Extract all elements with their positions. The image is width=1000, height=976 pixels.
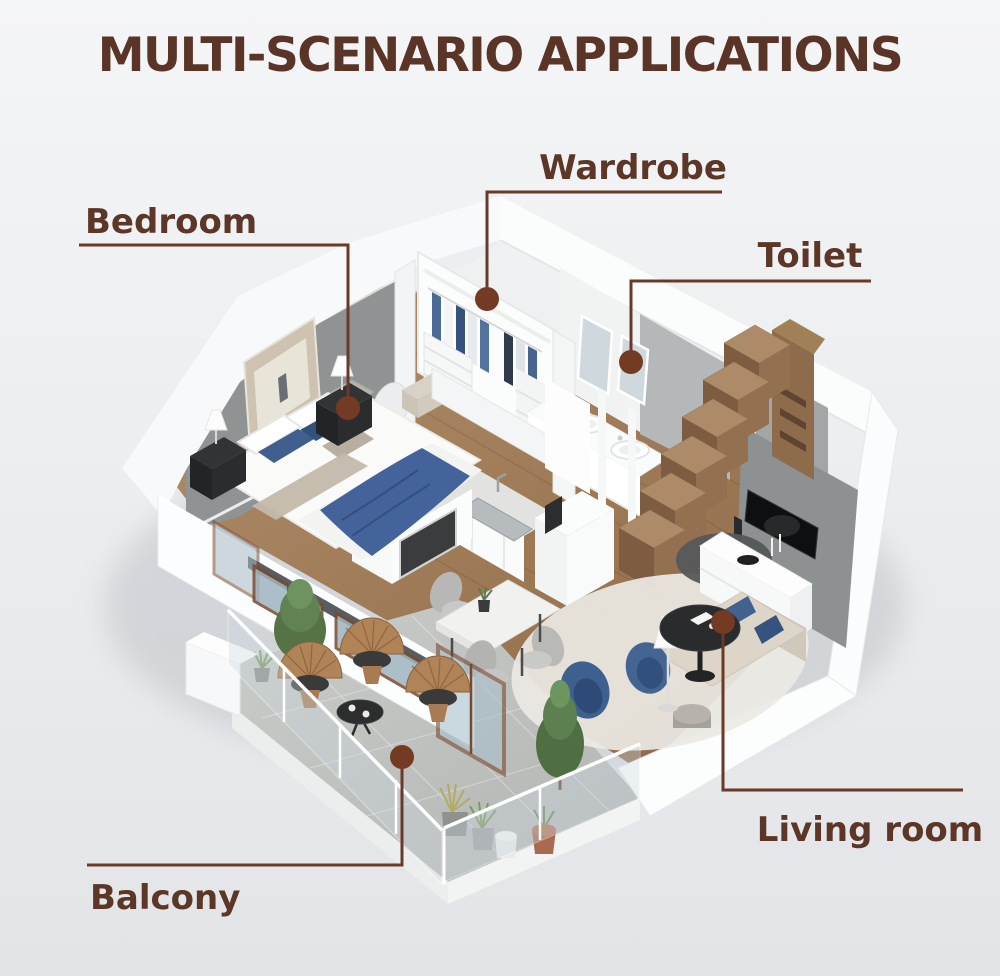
- page-title: MULTI-SCENARIO APPLICATIONS: [98, 28, 902, 83]
- glass-door-frame-2: [628, 406, 636, 538]
- balcony-callout-dot: [390, 745, 414, 769]
- side-table: [673, 704, 711, 728]
- wardrobe-label: Wardrobe: [539, 148, 727, 188]
- living-room-label: Living room: [757, 810, 983, 850]
- glass-door-frame: [598, 388, 606, 520]
- decor-bowl: [737, 555, 759, 565]
- living-room-callout-dot: [711, 610, 735, 634]
- wardrobe-callout-dot: [475, 287, 499, 311]
- toilet-callout-dot: [619, 350, 643, 374]
- bedroom-callout-dot: [336, 396, 360, 420]
- toilet-label: Toilet: [758, 236, 863, 276]
- floor-plan-scene: Bedroom Wardrobe Toilet Living room Balc…: [0, 0, 1000, 976]
- balcony-label: Balcony: [90, 878, 240, 918]
- poster: Bedroom Wardrobe Toilet Living room Balc…: [0, 0, 1000, 976]
- bedroom-label: Bedroom: [85, 202, 257, 242]
